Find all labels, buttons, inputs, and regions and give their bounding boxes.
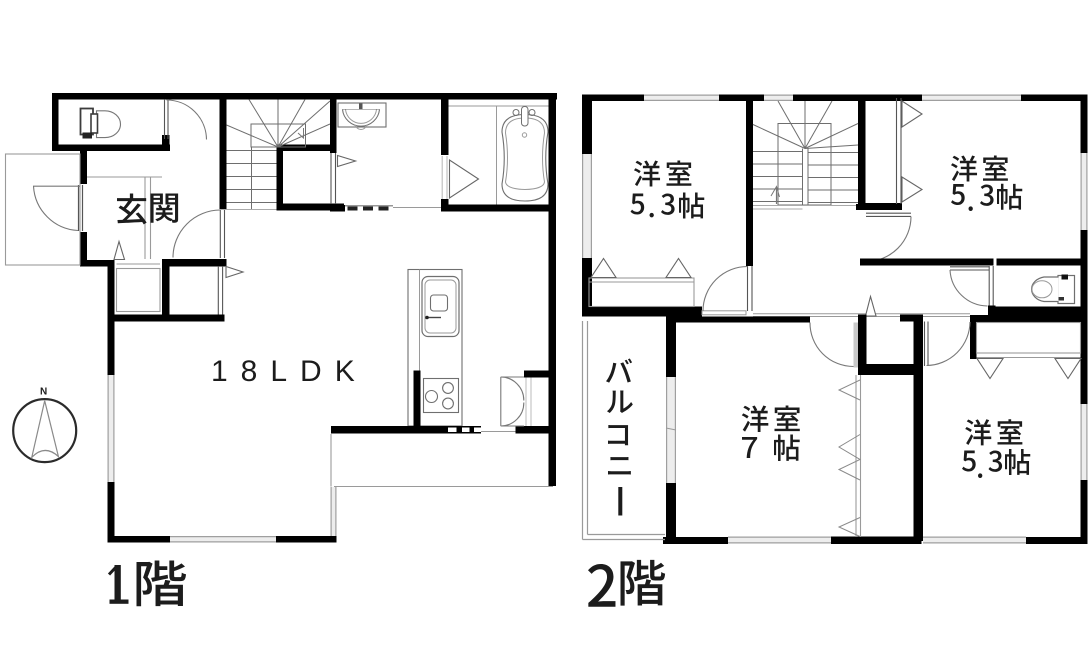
svg-text:18LDK: 18LDK [211,355,368,388]
svg-text:N: N [40,387,47,398]
